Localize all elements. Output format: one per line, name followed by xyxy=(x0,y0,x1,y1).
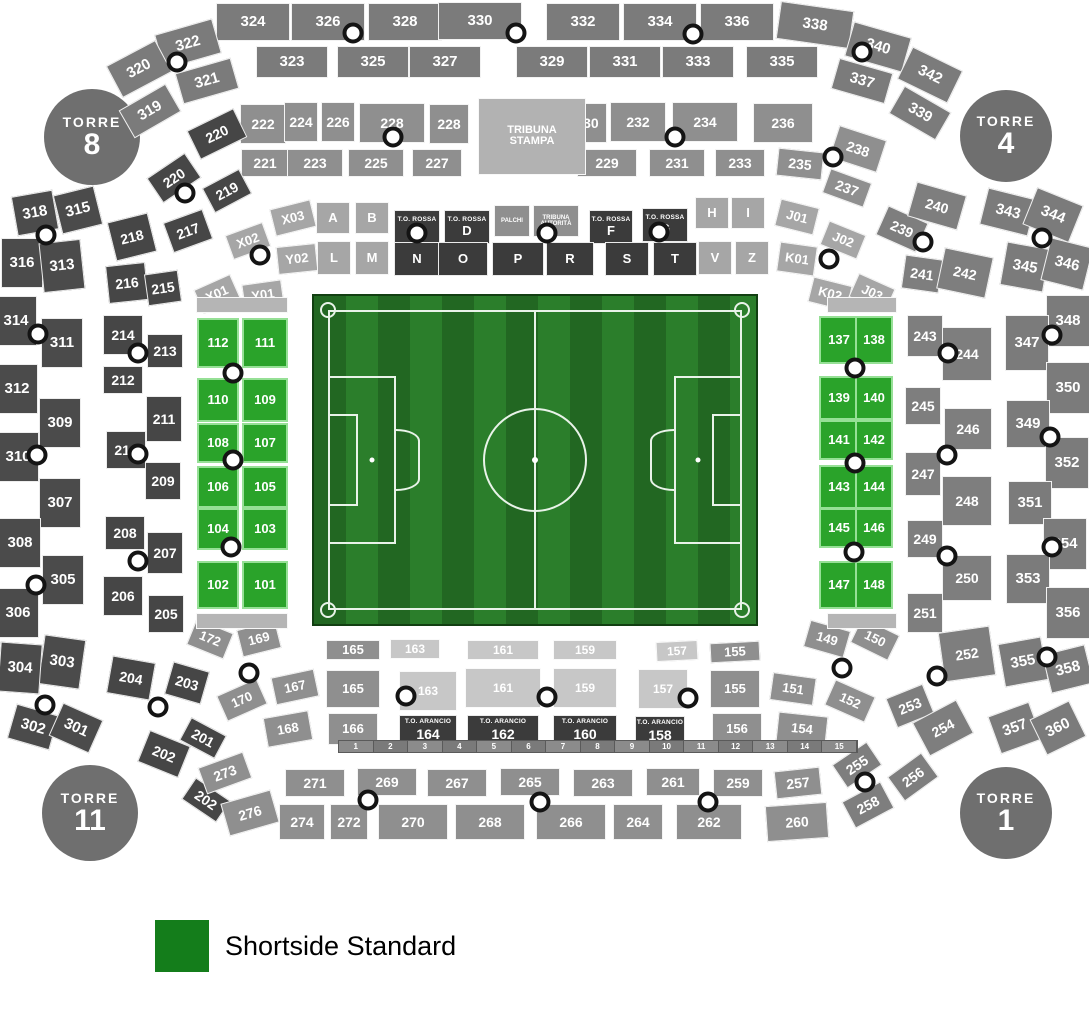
section-218[interactable]: 218 xyxy=(107,213,157,262)
section-257[interactable]: 257 xyxy=(774,767,823,800)
gate-marker xyxy=(128,551,149,572)
section-x03[interactable]: X03 xyxy=(269,199,317,236)
tower-number: 11 xyxy=(74,806,106,836)
section-303[interactable]: 303 xyxy=(38,634,87,689)
gate-marker xyxy=(128,444,149,465)
section-225[interactable]: 225 xyxy=(348,149,404,177)
section-313[interactable]: 313 xyxy=(39,239,86,293)
tower-8: TORRE8 xyxy=(44,89,140,185)
section-203[interactable]: 203 xyxy=(164,661,210,704)
section-259[interactable]: 259 xyxy=(713,769,763,797)
section-356[interactable]: 356 xyxy=(1046,587,1089,639)
section-161[interactable]: 161 xyxy=(465,668,541,708)
gate-marker xyxy=(175,183,196,204)
section-161[interactable]: 161 xyxy=(467,640,539,660)
football-pitch xyxy=(312,294,758,626)
section-332[interactable]: 332 xyxy=(546,3,620,41)
section-353[interactable]: 353 xyxy=(1006,554,1050,604)
section-229[interactable]: 229 xyxy=(577,149,637,177)
tower-number: 1 xyxy=(998,806,1015,836)
section-220[interactable]: 220 xyxy=(187,108,248,160)
section-206[interactable]: 206 xyxy=(103,576,143,616)
section-309[interactable]: 309 xyxy=(39,398,81,448)
gate-marker xyxy=(1037,647,1058,668)
section-328[interactable]: 328 xyxy=(368,3,442,41)
gate-marker xyxy=(128,343,149,364)
section-323[interactable]: 323 xyxy=(256,46,328,78)
section-p[interactable]: P xyxy=(492,242,544,276)
gate-marker xyxy=(832,658,853,679)
tower-11: TORRE11 xyxy=(42,765,138,861)
section-264[interactable]: 264 xyxy=(613,804,663,840)
section-109[interactable]: 109 xyxy=(242,378,288,422)
gate-marker xyxy=(148,697,169,718)
gate-marker xyxy=(28,324,49,345)
row-number-13: 13 xyxy=(753,741,788,752)
gate-marker xyxy=(167,52,188,73)
section-155[interactable]: 155 xyxy=(710,670,760,708)
section-216[interactable]: 216 xyxy=(105,262,149,304)
section-237[interactable]: 237 xyxy=(822,168,872,207)
section-sublabel: T.O. ARANCIO xyxy=(405,719,451,726)
section-j01[interactable]: J01 xyxy=(774,199,820,236)
row-number-7: 7 xyxy=(546,741,581,752)
section-k01[interactable]: K01 xyxy=(776,242,818,277)
section-211[interactable]: 211 xyxy=(146,396,182,442)
section-251[interactable]: 251 xyxy=(907,593,943,633)
section-170[interactable]: 170 xyxy=(216,678,268,721)
section-213[interactable]: 213 xyxy=(147,334,183,368)
gate-marker xyxy=(927,666,948,687)
section-sublabel: T.O. ARANCIO xyxy=(480,719,526,726)
section-o[interactable]: O xyxy=(438,242,488,276)
tower-number: 4 xyxy=(998,129,1015,159)
gate-marker xyxy=(855,772,876,793)
section-d[interactable]: T.O. ROSSAD xyxy=(444,210,490,244)
gate-marker xyxy=(845,453,866,474)
section-102[interactable]: 102 xyxy=(197,561,239,609)
row-number-2: 2 xyxy=(374,741,409,752)
section-316[interactable]: 316 xyxy=(1,238,43,288)
gate-marker xyxy=(537,223,558,244)
section-272[interactable]: 272 xyxy=(330,804,368,840)
gate-marker xyxy=(665,127,686,148)
gate-marker xyxy=(937,445,958,466)
gate-marker xyxy=(1040,427,1061,448)
section-236[interactable]: 236 xyxy=(753,103,813,143)
section-sublabel: T.O. ARANCIO xyxy=(637,720,683,727)
section-274[interactable]: 274 xyxy=(279,804,325,840)
section-263[interactable]: 263 xyxy=(573,769,633,797)
section-265[interactable]: 265 xyxy=(500,768,560,796)
section-151[interactable]: 151 xyxy=(769,672,816,706)
row-number-15: 15 xyxy=(822,741,857,752)
section-sublabel: T.O. ROSSA xyxy=(448,217,487,224)
gate-marker xyxy=(823,147,844,168)
section-s[interactable]: S xyxy=(605,242,649,276)
gate-marker xyxy=(27,445,48,466)
row-number-8: 8 xyxy=(581,741,616,752)
gate-marker xyxy=(223,450,244,471)
section-168[interactable]: 168 xyxy=(263,710,314,748)
section-217[interactable]: 217 xyxy=(163,209,213,253)
section-324[interactable]: 324 xyxy=(216,3,290,41)
gate-marker xyxy=(1042,325,1063,346)
row-number-1: 1 xyxy=(339,741,374,752)
gate-marker xyxy=(649,222,670,243)
gate-marker xyxy=(383,127,404,148)
section-110[interactable]: 110 xyxy=(197,378,239,422)
section-307[interactable]: 307 xyxy=(39,478,81,528)
section-315[interactable]: 315 xyxy=(53,186,103,235)
pitch-corner-arc xyxy=(734,602,750,618)
section-f[interactable]: T.O. ROSSAF xyxy=(589,210,633,244)
gate-marker xyxy=(1032,228,1053,249)
section-sublabel: T.O. ARANCIO xyxy=(562,719,608,726)
row-number-6: 6 xyxy=(512,741,547,752)
section-261[interactable]: 261 xyxy=(646,768,700,796)
pitch-corner-arc xyxy=(320,302,336,318)
section-308[interactable]: 308 xyxy=(0,518,41,568)
section-256[interactable]: 256 xyxy=(887,753,939,802)
gate-marker xyxy=(26,575,47,596)
section-268[interactable]: 268 xyxy=(455,804,525,840)
section-a[interactable]: A xyxy=(316,202,350,234)
stand-segment xyxy=(196,297,288,313)
legend-swatch xyxy=(155,920,209,972)
section-260[interactable]: 260 xyxy=(765,802,829,842)
gate-marker xyxy=(343,23,364,44)
legend: Shortside Standard xyxy=(155,920,456,972)
section-215[interactable]: 215 xyxy=(144,270,182,306)
section-221[interactable]: 221 xyxy=(241,149,289,177)
section-148[interactable]: 148 xyxy=(855,561,893,609)
section-242[interactable]: 242 xyxy=(936,247,994,298)
section-n[interactable]: N xyxy=(394,242,440,276)
section-i[interactable]: I xyxy=(731,197,765,229)
section-m[interactable]: M xyxy=(355,241,389,275)
gate-marker xyxy=(221,537,242,558)
section-223[interactable]: 223 xyxy=(287,149,343,177)
gate-marker xyxy=(537,687,558,708)
pitch-goal-area-left xyxy=(328,414,358,506)
pitch-center-spot xyxy=(532,457,538,463)
section-245[interactable]: 245 xyxy=(905,387,941,425)
gate-marker xyxy=(407,223,428,244)
row-number-12: 12 xyxy=(719,741,754,752)
pitch-goal-area-right xyxy=(712,414,742,506)
section-101[interactable]: 101 xyxy=(242,561,288,609)
section-333[interactable]: 333 xyxy=(662,46,734,78)
section-273[interactable]: 273 xyxy=(198,752,253,795)
section-204[interactable]: 204 xyxy=(106,655,156,700)
section-228[interactable]: 228 xyxy=(429,104,469,144)
gate-marker xyxy=(698,792,719,813)
row-number-strip: 123456789101112131415 xyxy=(338,740,858,753)
section-246[interactable]: 246 xyxy=(944,408,992,450)
section-146[interactable]: 146 xyxy=(855,508,893,548)
tower-number: 8 xyxy=(84,130,101,160)
section-147[interactable]: 147 xyxy=(819,561,859,609)
gate-marker xyxy=(938,343,959,364)
gate-marker xyxy=(819,249,840,270)
section-138[interactable]: 138 xyxy=(855,316,893,364)
section-159[interactable]: 159 xyxy=(553,668,617,708)
gate-marker xyxy=(845,358,866,379)
section-331[interactable]: 331 xyxy=(589,46,661,78)
section-222[interactable]: 222 xyxy=(240,104,286,144)
section-111[interactable]: 111 xyxy=(242,318,288,368)
section-227[interactable]: 227 xyxy=(412,149,462,177)
section-226[interactable]: 226 xyxy=(321,102,355,142)
section-350[interactable]: 350 xyxy=(1046,362,1089,414)
section-312[interactable]: 312 xyxy=(0,364,38,414)
section-107[interactable]: 107 xyxy=(242,423,288,463)
section-165[interactable]: 165 xyxy=(326,640,380,660)
gate-marker xyxy=(913,232,934,253)
section-305[interactable]: 305 xyxy=(42,555,84,605)
section-338[interactable]: 338 xyxy=(776,1,855,49)
pitch-penalty-spot-right xyxy=(696,458,701,463)
row-number-3: 3 xyxy=(408,741,443,752)
section-157[interactable]: 157 xyxy=(656,640,699,662)
section-212[interactable]: 212 xyxy=(103,366,143,394)
gate-marker xyxy=(36,225,57,246)
pitch-penalty-spot-left xyxy=(370,458,375,463)
section-140[interactable]: 140 xyxy=(855,376,893,420)
section-231[interactable]: 231 xyxy=(649,149,705,177)
section-h[interactable]: H xyxy=(695,197,729,229)
gate-marker xyxy=(223,363,244,384)
pitch-corner-arc xyxy=(320,602,336,618)
section-r[interactable]: R xyxy=(546,242,594,276)
section-270[interactable]: 270 xyxy=(378,804,448,840)
section-360[interactable]: 360 xyxy=(1029,700,1086,755)
section-235[interactable]: 235 xyxy=(776,148,825,181)
section-232[interactable]: 232 xyxy=(610,102,666,142)
section-208[interactable]: 208 xyxy=(105,516,145,550)
gate-marker xyxy=(678,688,699,709)
gate-marker xyxy=(35,695,56,716)
pitch-corner-arc xyxy=(734,302,750,318)
section-304[interactable]: 304 xyxy=(0,642,43,695)
section-palchi[interactable]: PALCHI xyxy=(494,205,530,237)
stand-segment xyxy=(827,613,897,629)
section-167[interactable]: 167 xyxy=(271,669,320,706)
section-106[interactable]: 106 xyxy=(197,466,239,508)
section-165[interactable]: 165 xyxy=(326,670,380,708)
section-329[interactable]: 329 xyxy=(516,46,588,78)
section-248[interactable]: 248 xyxy=(942,476,992,526)
row-number-11: 11 xyxy=(684,741,719,752)
section-325[interactable]: 325 xyxy=(337,46,409,78)
section-205[interactable]: 205 xyxy=(148,595,184,633)
section-209[interactable]: 209 xyxy=(145,462,181,500)
section-b[interactable]: B xyxy=(355,202,389,234)
gate-marker xyxy=(396,686,417,707)
gate-marker xyxy=(937,546,958,567)
section-247[interactable]: 247 xyxy=(905,452,941,496)
section-t[interactable]: T xyxy=(653,242,697,276)
section-y02[interactable]: Y02 xyxy=(276,243,319,275)
gate-marker xyxy=(358,790,379,811)
gate-marker xyxy=(852,42,873,63)
section-336[interactable]: 336 xyxy=(700,3,774,41)
gate-marker xyxy=(1042,537,1063,558)
section-347[interactable]: 347 xyxy=(1005,315,1049,371)
section-276[interactable]: 276 xyxy=(220,789,279,836)
section-sublabel: T.O. ROSSA xyxy=(592,217,631,224)
section-139[interactable]: 139 xyxy=(819,376,859,420)
section-207[interactable]: 207 xyxy=(147,532,183,574)
gate-marker xyxy=(844,542,865,563)
section-tribuna-stampa[interactable]: TRIBUNA STAMPA xyxy=(478,98,586,175)
row-number-9: 9 xyxy=(615,741,650,752)
tower-1: TORRE1 xyxy=(960,767,1052,859)
section-271[interactable]: 271 xyxy=(285,769,345,797)
gate-marker xyxy=(530,792,551,813)
section-155[interactable]: 155 xyxy=(710,641,761,664)
section-z[interactable]: Z xyxy=(735,241,769,275)
section-105[interactable]: 105 xyxy=(242,466,288,508)
section-224[interactable]: 224 xyxy=(284,102,318,142)
section-335[interactable]: 335 xyxy=(746,46,818,78)
section-sublabel: T.O. ROSSA xyxy=(646,215,685,222)
gate-marker xyxy=(506,23,527,44)
section-103[interactable]: 103 xyxy=(242,508,288,550)
section-l[interactable]: L xyxy=(317,241,351,275)
stand-segment xyxy=(827,297,897,313)
section-112[interactable]: 112 xyxy=(197,318,239,368)
section-v[interactable]: V xyxy=(698,241,732,275)
section-163[interactable]: 163 xyxy=(390,639,440,659)
legend-label: Shortside Standard xyxy=(225,931,456,962)
pitch-penalty-arc-right xyxy=(650,429,674,491)
section-152[interactable]: 152 xyxy=(824,679,876,722)
row-number-10: 10 xyxy=(650,741,685,752)
section-233[interactable]: 233 xyxy=(715,149,765,177)
pitch-penalty-arc-left xyxy=(396,429,420,491)
gate-marker xyxy=(683,24,704,45)
row-number-5: 5 xyxy=(477,741,512,752)
section-327[interactable]: 327 xyxy=(409,46,481,78)
section-306[interactable]: 306 xyxy=(0,588,39,638)
gate-marker xyxy=(239,663,260,684)
section-311[interactable]: 311 xyxy=(41,318,83,368)
section-159[interactable]: 159 xyxy=(553,640,617,660)
row-number-4: 4 xyxy=(443,741,478,752)
tower-4: TORRE4 xyxy=(960,90,1052,182)
row-number-14: 14 xyxy=(788,741,823,752)
section-267[interactable]: 267 xyxy=(427,769,487,797)
stand-segment xyxy=(196,613,288,629)
section-301[interactable]: 301 xyxy=(49,703,104,754)
stadium-seat-map: 123456789101112131415 Shortside Standard… xyxy=(0,0,1089,1032)
gate-marker xyxy=(250,245,271,266)
